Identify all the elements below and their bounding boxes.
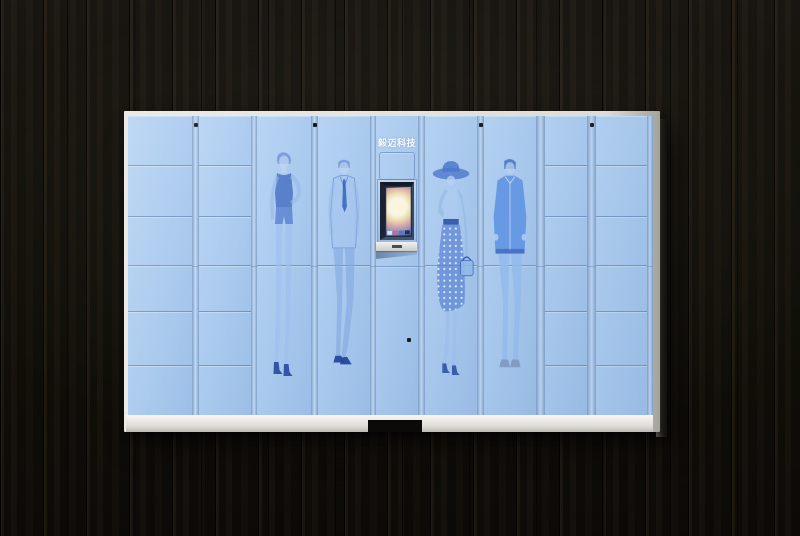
screen-display xyxy=(386,187,411,236)
locker-door xyxy=(128,266,192,312)
figure-column-man-jacket xyxy=(484,116,536,415)
locker-door xyxy=(596,312,647,366)
locker-door xyxy=(199,166,251,217)
figure-man-suit-artwork xyxy=(318,144,370,400)
card-slot xyxy=(392,245,402,248)
locker-door xyxy=(596,366,647,415)
screen-recess xyxy=(380,182,414,240)
locker-door xyxy=(128,116,192,166)
kiosk-screen xyxy=(378,180,416,242)
locker-door xyxy=(128,366,192,415)
lock-rail xyxy=(587,116,596,415)
figure-column-woman-dress xyxy=(257,116,311,415)
base-kick-recess xyxy=(368,420,422,432)
locker-door xyxy=(199,116,251,166)
locker-door xyxy=(596,217,647,266)
locker-door xyxy=(128,166,192,217)
figure-woman-hat-artwork xyxy=(425,144,477,400)
locker-door xyxy=(199,312,251,366)
locker-door xyxy=(596,166,647,217)
door-seam xyxy=(376,266,418,267)
locker-column-left-2 xyxy=(199,116,251,415)
lock-rail xyxy=(418,116,425,415)
lock-rail xyxy=(477,116,484,415)
locker-front: 毅迈科技 xyxy=(128,116,653,415)
cabinet-base xyxy=(126,415,653,432)
locker-door xyxy=(199,266,251,312)
figure-woman-dress-artwork xyxy=(257,144,311,400)
locker-door xyxy=(545,166,587,217)
lock-rail xyxy=(536,116,545,415)
dispenser-ledge xyxy=(376,242,417,251)
figure-column-woman-hat xyxy=(425,116,477,415)
locker-column-right-1 xyxy=(545,116,587,415)
figure-column-man-suit xyxy=(318,116,370,415)
smart-locker-cabinet: 毅迈科技 xyxy=(124,111,660,432)
product-photo: 毅迈科技 xyxy=(0,0,800,536)
locker-door xyxy=(128,312,192,366)
locker-door xyxy=(596,266,647,312)
brand-label: 毅迈科技 xyxy=(376,136,418,149)
locker-column-left-1 xyxy=(128,116,192,415)
locker-column-right-2 xyxy=(596,116,647,415)
locker-door xyxy=(199,217,251,266)
ledge-shadow xyxy=(376,251,417,259)
lock-rail xyxy=(311,116,318,415)
keyhole xyxy=(407,338,411,342)
locker-door xyxy=(545,116,587,166)
console-column: 毅迈科技 xyxy=(376,116,418,415)
locker-door xyxy=(199,366,251,415)
locker-door xyxy=(128,217,192,266)
locker-door xyxy=(545,266,587,312)
locker-door xyxy=(545,312,587,366)
screen-toolbar xyxy=(386,230,411,235)
locker-door xyxy=(596,116,647,166)
locker-door xyxy=(545,366,587,415)
console-top-panel xyxy=(379,152,415,180)
edge-strip xyxy=(647,116,653,415)
locker-door xyxy=(545,217,587,266)
lock-rail xyxy=(192,116,199,415)
figure-man-jacket-artwork xyxy=(484,144,536,400)
